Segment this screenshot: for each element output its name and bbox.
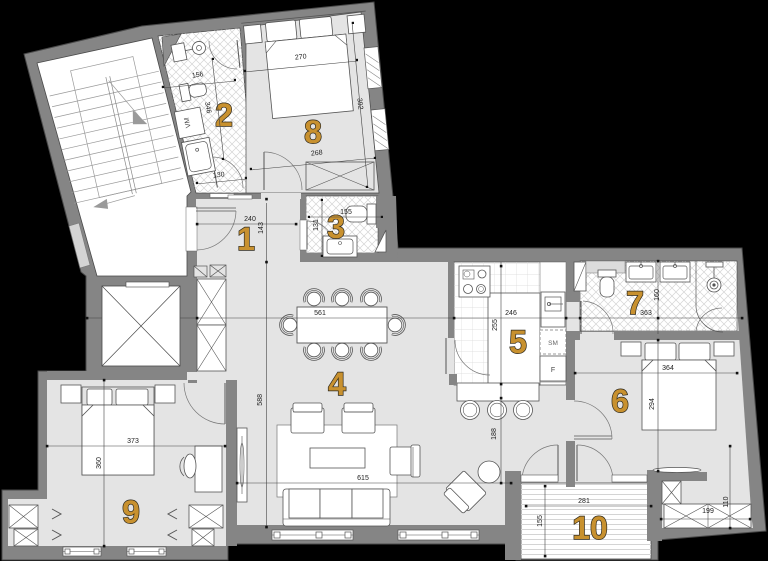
svg-text:294: 294 (649, 398, 656, 410)
svg-text:188: 188 (491, 428, 498, 440)
svg-text:155: 155 (537, 515, 544, 527)
svg-text:F: F (551, 367, 555, 374)
svg-text:160: 160 (654, 289, 661, 301)
svg-text:6: 6 (611, 383, 629, 419)
svg-text:240: 240 (244, 216, 256, 223)
svg-text:130: 130 (213, 171, 225, 179)
svg-text:373: 373 (127, 438, 139, 445)
svg-text:131: 131 (313, 219, 320, 231)
svg-text:9: 9 (122, 494, 140, 530)
svg-text:268: 268 (311, 149, 323, 157)
svg-text:199: 199 (702, 508, 714, 515)
svg-text:588: 588 (257, 394, 264, 406)
svg-text:615: 615 (357, 475, 369, 482)
svg-text:5: 5 (509, 324, 527, 360)
svg-text:1: 1 (237, 221, 255, 257)
svg-text:SM: SM (548, 340, 558, 347)
svg-text:4: 4 (328, 366, 346, 402)
svg-text:8: 8 (304, 114, 322, 150)
svg-text:270: 270 (295, 53, 307, 61)
svg-text:143: 143 (258, 222, 265, 234)
svg-text:561: 561 (314, 310, 326, 317)
svg-text:392: 392 (355, 98, 363, 110)
svg-text:364: 364 (662, 365, 674, 372)
svg-text:10: 10 (572, 510, 608, 546)
svg-text:255: 255 (492, 319, 499, 331)
svg-text:360: 360 (96, 457, 103, 469)
svg-text:155: 155 (340, 209, 352, 216)
svg-text:363: 363 (640, 310, 652, 317)
svg-text:246: 246 (505, 310, 517, 317)
svg-text:2: 2 (215, 97, 233, 133)
svg-text:281: 281 (578, 498, 590, 505)
svg-text:110: 110 (723, 496, 730, 507)
